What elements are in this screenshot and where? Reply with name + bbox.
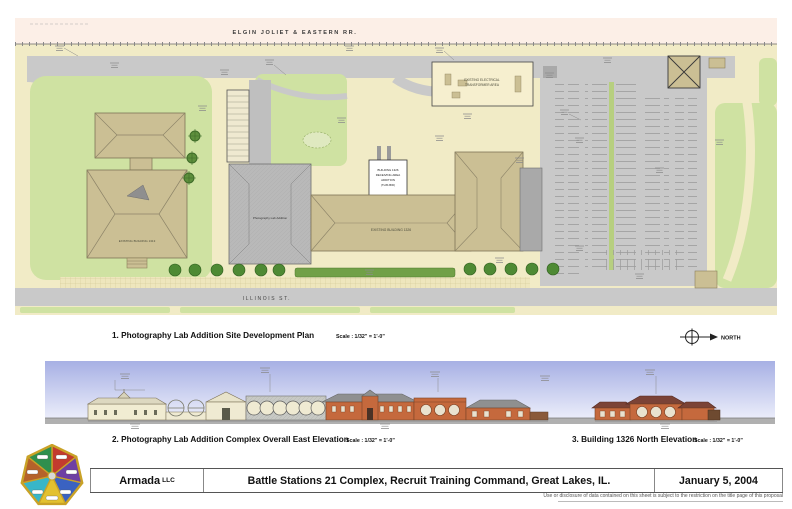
sheet-date: January 5, 2004	[679, 475, 758, 487]
disclaimer-text: Use or disclosure of data contained on t…	[543, 493, 783, 499]
elevation-north-scale: Scale : 1/32" = 1'-0"	[694, 438, 743, 444]
site-plan-drawing: ELGIN JOLIET & EASTERN RR.	[15, 18, 777, 315]
existing-building-1326: EXISTING BUILDING 1326	[311, 195, 471, 251]
addition-area-label: Photography Lab Addition	[253, 216, 288, 220]
transformer-label-2: TRANSFORMER AREA	[465, 83, 500, 87]
existing-building-label: EXISTING BUILDING 1326	[371, 228, 411, 232]
company-name: Armada	[119, 475, 160, 487]
parking-median	[609, 82, 614, 270]
note-line: RECEIVING AREA	[376, 173, 400, 177]
north-arrow-icon: NORTH	[678, 326, 758, 348]
note-line: (THIS BID)	[381, 183, 395, 187]
elevations-drawing	[20, 358, 775, 432]
company-logo	[18, 444, 86, 508]
company-cell: Armada LLC	[90, 469, 204, 492]
south-planting	[20, 307, 515, 313]
disclaimer-underline	[558, 501, 783, 502]
parking-lot	[540, 63, 707, 286]
note-line: ADDITION	[381, 178, 395, 182]
title-block: Armada LLC Battle Stations 21 Complex, R…	[90, 468, 783, 493]
transformer-area: EXISTING ELECTRICAL TRANSFORMER AREA	[432, 62, 533, 106]
illinois-street	[15, 288, 777, 306]
left-building-label: EXISTING BUILDING 1313	[119, 239, 156, 243]
transformer-label-1: EXISTING ELECTRICAL	[464, 78, 500, 82]
elevation-east-scale: Scale : 1/32" = 1'-0"	[346, 438, 395, 444]
photo-lab-addition-building: Photography Lab Addition	[229, 164, 311, 264]
project-title: Battle Stations 21 Complex, Recruit Trai…	[248, 475, 611, 487]
elevation-north-caption: 3. Building 1326 North Elevation	[572, 435, 697, 444]
small-building-southeast	[695, 271, 717, 288]
railroad-label: ELGIN JOLIET & EASTERN RR.	[233, 30, 358, 36]
plan-scale: Scale : 1/32" = 1'-0"	[336, 334, 385, 340]
drawing-sheet: ELGIN JOLIET & EASTERN RR.	[0, 0, 792, 509]
note-line: BUILDING 1326	[378, 168, 399, 172]
north-label: NORTH	[721, 336, 741, 342]
elevation-east-caption: 2. Photography Lab Addition Complex Over…	[112, 435, 349, 444]
company-suffix: LLC	[162, 477, 175, 484]
street-label: ILLINOIS ST.	[243, 296, 291, 302]
plan-caption: 1. Photography Lab Addition Site Develop…	[112, 331, 314, 340]
date-cell: January 5, 2004	[654, 469, 783, 492]
existing-building-west: EXISTING BUILDING 1313	[87, 113, 187, 268]
project-cell: Battle Stations 21 Complex, Recruit Trai…	[204, 469, 654, 492]
north-margin	[15, 18, 777, 44]
